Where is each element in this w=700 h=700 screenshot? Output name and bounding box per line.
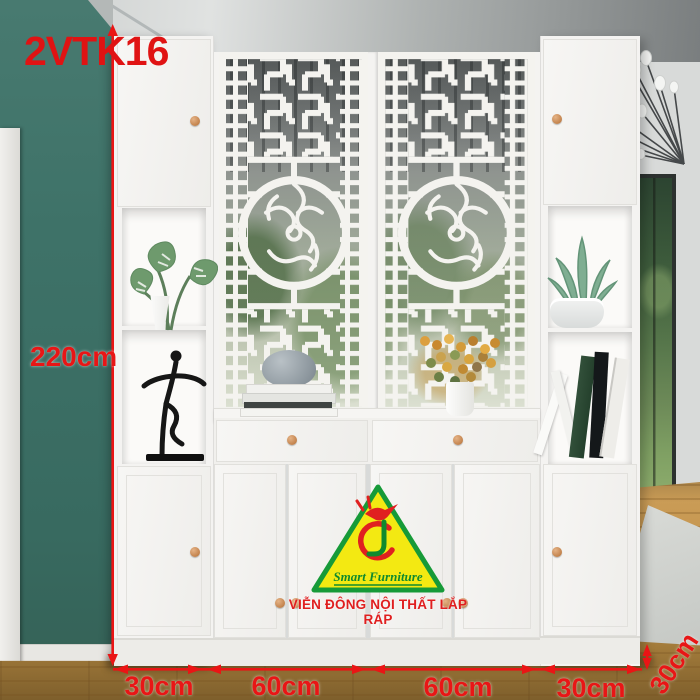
window [634,174,676,506]
flower-bouquet [420,336,430,346]
product-photo: Smart Furniture VIỄN ĐÔNG NỘI THẤT LẮP R… [0,0,700,700]
width-dimension-label: 30cm [124,671,193,700]
flower-vase [446,382,474,416]
door-knob [552,547,562,557]
wall-column [0,128,20,700]
book-stack [240,384,336,415]
door-inset [552,473,628,627]
door-knob [275,598,285,608]
drawer-knob [287,435,297,445]
width-dimension-label: 60cm [423,672,492,700]
dancer-figurine [136,346,212,464]
book [240,408,338,417]
lattice-screen-right [378,52,535,414]
books-and-bookend [544,350,634,462]
brand-logo: Smart Furniture [308,482,448,596]
height-dimension-label: 220cm [30,341,117,373]
gray-vase [262,350,316,387]
logo-brand-text: Smart Furniture [333,569,422,584]
garden-view [638,178,672,502]
product-code: 2VTK16 [24,28,168,75]
logo-tagline: VIỄN ĐÔNG NỘI THẤT LẮP RÁP [288,597,468,627]
monstera-plant [122,234,218,334]
drawer-knob [453,435,463,445]
screen-frame-mid [368,52,378,414]
drawer-row [214,418,540,464]
door-knob [190,116,200,126]
plant-pot [550,298,604,328]
cabinet-base [540,636,640,664]
door-knob [552,114,562,124]
aloe-plant [546,232,618,306]
door-knob [190,547,200,557]
cabinet-base [114,638,214,666]
width-dimension-label: 60cm [251,671,320,700]
cabinet-door [214,464,286,638]
screen-frame-left [214,52,219,414]
screen-frame-right [535,52,540,414]
width-dimension-label: 30cm [556,673,625,700]
cabinet-base [214,638,540,666]
